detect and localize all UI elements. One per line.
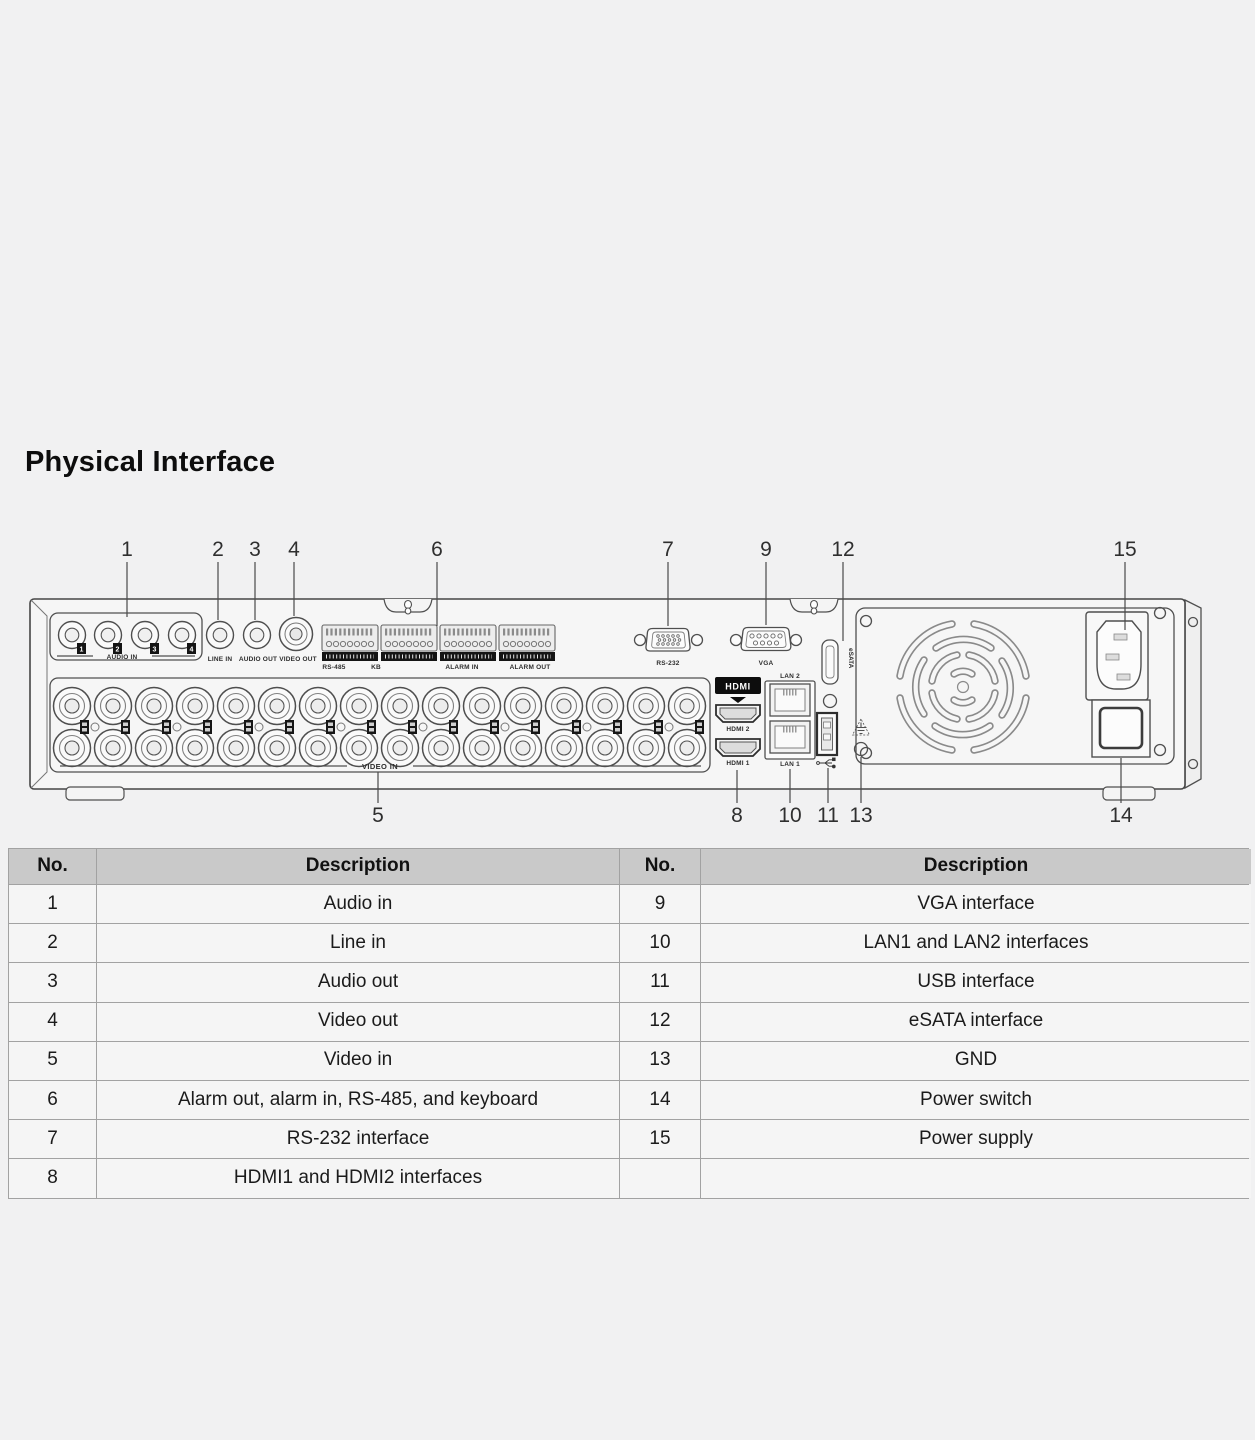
chassis-foot-right — [1103, 787, 1155, 800]
rear-panel-diagram: 1 2 3 4 AUDIO IN LINE IN AUDIO OUT VIDEO… — [0, 525, 1255, 837]
audio-out-connector — [244, 622, 271, 649]
table-cell: 5 — [9, 1042, 96, 1080]
table-cell: Video in — [97, 1042, 619, 1080]
hdmi2-label: HDMI 2 — [726, 726, 749, 733]
svg-text:4: 4 — [288, 538, 300, 561]
alarm-in-label: ALARM IN — [445, 664, 478, 671]
svg-text:3: 3 — [153, 647, 157, 654]
line-in-label: LINE IN — [208, 656, 233, 663]
table-cell: HDMI1 and HDMI2 interfaces — [97, 1159, 619, 1197]
lan2-port — [770, 684, 810, 716]
table-cell: 2 — [9, 924, 96, 962]
table-cell: 12 — [620, 1003, 700, 1041]
usb-port — [817, 713, 837, 755]
table-cell: Alarm out, alarm in, RS-485, and keyboar… — [97, 1081, 619, 1119]
table-cell: LAN1 and LAN2 interfaces — [701, 924, 1251, 962]
svg-text:7: 7 — [662, 538, 674, 561]
fan-grille — [900, 624, 1026, 750]
table-cell: 7 — [9, 1120, 96, 1158]
svg-text:9: 9 — [760, 538, 772, 561]
table-cell: Line in — [97, 924, 619, 962]
table-cell: 15 — [620, 1120, 700, 1158]
table-cell: 1 — [9, 885, 96, 923]
header-description-right: Description — [701, 849, 1251, 884]
svg-text:2: 2 — [212, 538, 224, 561]
audio-out-label: AUDIO OUT — [239, 656, 277, 663]
hdmi1-label: HDMI 1 — [726, 760, 749, 767]
svg-text:1: 1 — [80, 647, 84, 654]
table-cell: Video out — [97, 1003, 619, 1041]
header-no-left: No. — [9, 849, 96, 884]
svg-text:14: 14 — [1109, 804, 1133, 827]
table-cell — [620, 1159, 700, 1197]
lan-ports: LAN 2 LAN 1 — [765, 673, 815, 768]
lan1-port — [770, 721, 810, 753]
svg-text:HDMI: HDMI — [725, 682, 750, 692]
table-cell: Audio in — [97, 885, 619, 923]
table-cell: 13 — [620, 1042, 700, 1080]
table-cell: 14 — [620, 1081, 700, 1119]
audio-in-label: AUDIO IN — [107, 654, 138, 661]
svg-text:6: 6 — [431, 538, 443, 561]
video-out-connector — [280, 618, 313, 651]
svg-text:4: 4 — [190, 647, 194, 654]
svg-text:10: 10 — [778, 804, 801, 827]
rs232-label: RS-232 — [656, 660, 679, 667]
power-switch — [1092, 700, 1150, 757]
esata-label: eSATA — [847, 648, 854, 669]
svg-text:1: 1 — [121, 538, 133, 561]
svg-text:8: 8 — [731, 804, 743, 827]
power-inlet — [1086, 612, 1148, 700]
svg-text:15: 15 — [1113, 538, 1136, 561]
table-cell: GND — [701, 1042, 1251, 1080]
table-cell: 8 — [9, 1159, 96, 1197]
table-cell: Power switch — [701, 1081, 1251, 1119]
table-cell: 3 — [9, 963, 96, 1001]
interface-description-table: No. Description No. Description 1 Audio … — [8, 848, 1249, 1199]
video-in-label: VIDEO IN — [362, 762, 398, 771]
lan1-label: LAN 1 — [780, 761, 800, 768]
svg-text:3: 3 — [249, 538, 261, 561]
table-cell: 4 — [9, 1003, 96, 1041]
hdmi1-port — [716, 739, 760, 756]
svg-text:12: 12 — [831, 538, 854, 561]
rs485-label: RS-485 — [322, 664, 345, 671]
table-cell: Audio out — [97, 963, 619, 1001]
svg-text:5: 5 — [372, 804, 384, 827]
table-cell: RS-232 interface — [97, 1120, 619, 1158]
header-description-left: Description — [97, 849, 619, 884]
table-cell: eSATA interface — [701, 1003, 1251, 1041]
table-cell: Power supply — [701, 1120, 1251, 1158]
header-no-right: No. — [620, 849, 700, 884]
video-out-label: VIDEO OUT — [279, 656, 317, 663]
svg-text:13: 13 — [849, 804, 872, 827]
page-title: Physical Interface — [25, 446, 275, 479]
table-cell: VGA interface — [701, 885, 1251, 923]
hdmi2-port — [716, 705, 760, 722]
alarm-out-label: ALARM OUT — [510, 664, 551, 671]
table-cell: USB interface — [701, 963, 1251, 1001]
page: Physical Interface — [0, 0, 1255, 1440]
kb-label: KB — [371, 664, 381, 671]
table-cell — [701, 1159, 1251, 1197]
lan2-label: LAN 2 — [780, 673, 800, 680]
chassis-foot-left — [66, 787, 124, 800]
table-cell: 6 — [9, 1081, 96, 1119]
svg-text:2: 2 — [116, 647, 120, 654]
table-cell: 10 — [620, 924, 700, 962]
table-cell: 9 — [620, 885, 700, 923]
svg-text:11: 11 — [817, 804, 839, 827]
table-cell: 11 — [620, 963, 700, 1001]
vga-label: VGA — [759, 660, 774, 667]
line-in-connector — [207, 622, 234, 649]
